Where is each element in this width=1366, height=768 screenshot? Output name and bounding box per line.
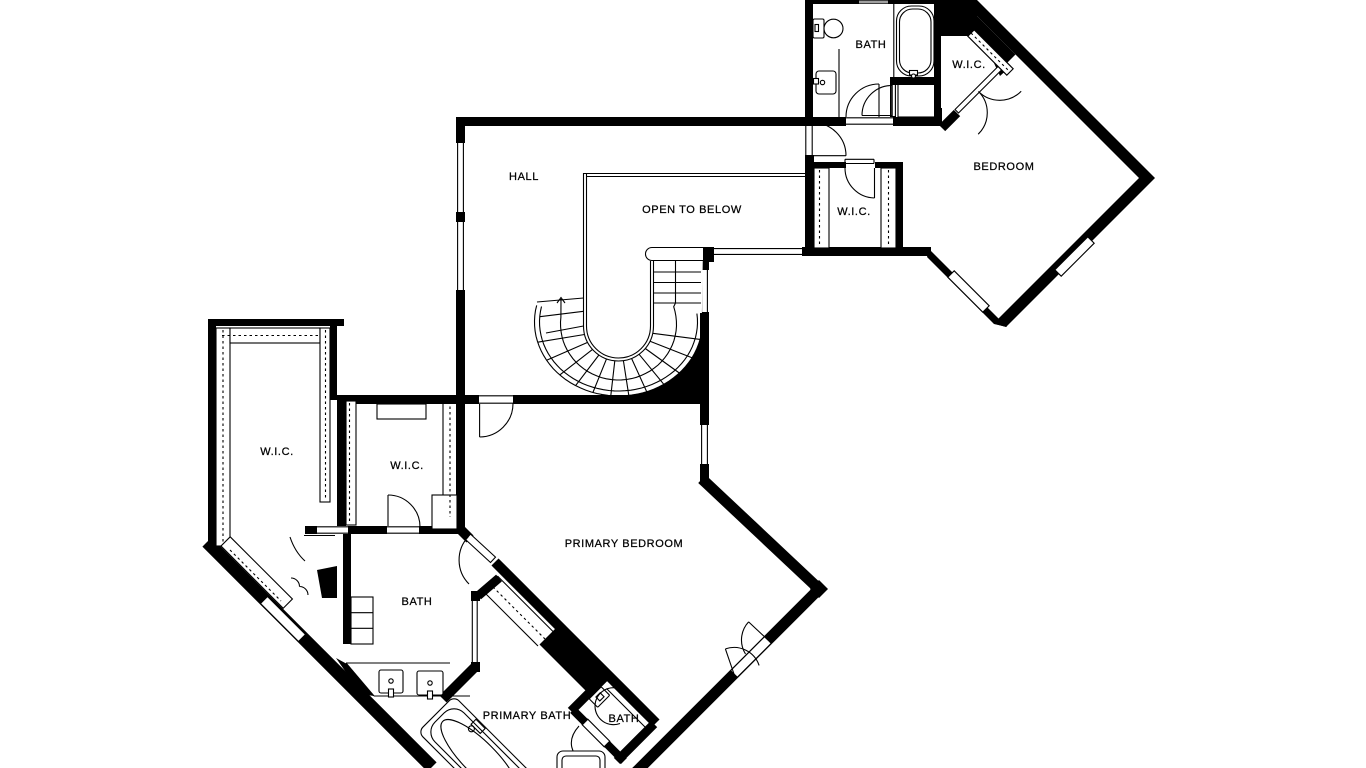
svg-text:BATH: BATH — [856, 39, 887, 51]
svg-text:OPEN TO BELOW: OPEN TO BELOW — [642, 204, 742, 216]
svg-text:W.I.C.: W.I.C. — [260, 446, 294, 458]
svg-text:W.I.C.: W.I.C. — [952, 59, 986, 71]
svg-text:W.I.C.: W.I.C. — [837, 206, 871, 218]
svg-text:W.I.C.: W.I.C. — [390, 460, 424, 472]
svg-text:PRIMARY BATH: PRIMARY BATH — [483, 710, 572, 722]
svg-text:BATH: BATH — [609, 713, 640, 725]
svg-text:BEDROOM: BEDROOM — [973, 161, 1034, 173]
svg-text:HALL: HALL — [509, 171, 539, 183]
svg-text:PRIMARY BEDROOM: PRIMARY BEDROOM — [565, 538, 684, 550]
svg-text:BATH: BATH — [402, 596, 433, 608]
